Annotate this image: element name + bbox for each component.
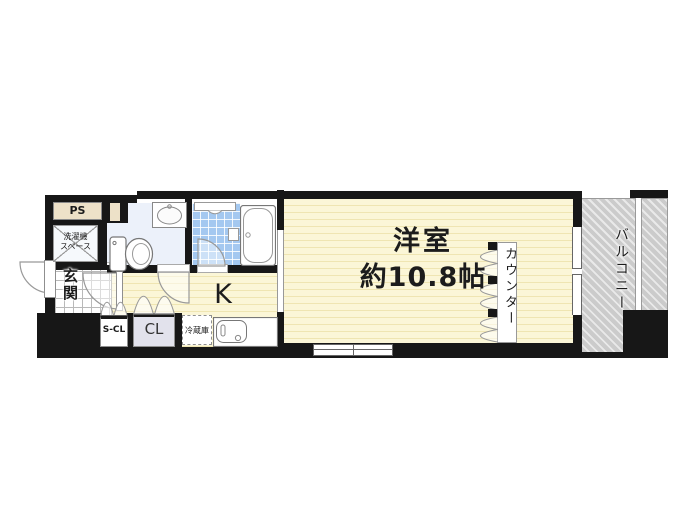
wall-right-lower [573, 315, 582, 352]
floorplan: 洋室 約10.8帖 K カウンター バルコニー 玄関 PS 洗濯機 スペース S… [0, 0, 700, 525]
balcony-divider [635, 198, 642, 310]
closet-doors [133, 294, 175, 315]
wall-balcony-block [623, 310, 668, 353]
south-window [313, 344, 393, 356]
counter-anchor-low [488, 309, 497, 317]
wall-bath-mainroom-upper [277, 190, 284, 230]
wall-bottom-left [37, 347, 290, 358]
refrigerator-label: 冷蔵庫 [182, 325, 212, 336]
wall-wet-bottom-c [227, 265, 284, 273]
balcony-label: バルコニー [611, 227, 631, 312]
closet-label: CL [133, 320, 175, 338]
wall-balcony-top-bar [630, 190, 668, 198]
bath-counter-icon [194, 202, 236, 218]
washbasin-icon [152, 202, 187, 228]
front-door-leaf [44, 260, 56, 298]
balcony-window [572, 227, 582, 315]
entrance-label: 玄関 [60, 268, 81, 302]
shoes-closet-label: S-CL [100, 325, 128, 335]
kitchen-sink-icon [213, 317, 278, 347]
wall-balcony-bottom [573, 352, 668, 358]
bath-door-arc [196, 237, 227, 268]
wall-right-upper [573, 191, 582, 227]
bathtub-icon [240, 205, 276, 266]
kitchen-mainroom-opening [277, 230, 284, 312]
counter-label: カウンター [500, 247, 519, 327]
kitchen-label: K [206, 279, 240, 310]
toilet-icon [108, 235, 155, 273]
shoes-closet-doors [100, 299, 128, 316]
pipe-space-label: PS [53, 204, 102, 217]
wall-bath-mainroom-lower [277, 312, 284, 348]
ps-column-core [110, 203, 120, 221]
bath-step [228, 228, 239, 241]
wall-cl-fridge [175, 313, 182, 347]
washing-machine-label: 洗濯機 スペース [53, 232, 98, 252]
wall-top-main [137, 191, 573, 199]
balcony-neighbor-floor [642, 198, 668, 310]
